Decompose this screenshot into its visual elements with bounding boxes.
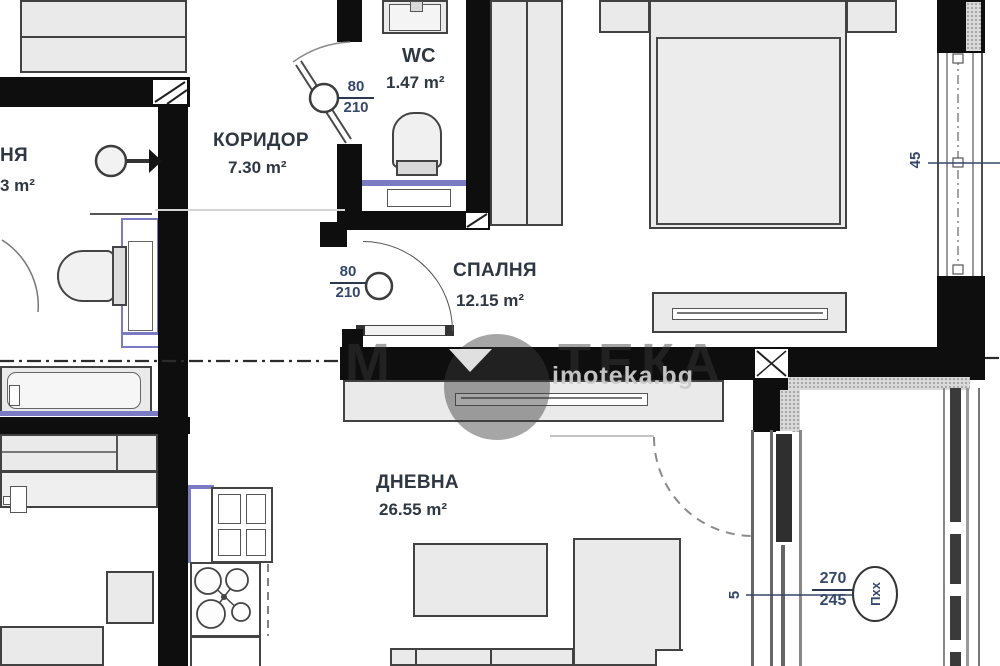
stove (190, 562, 261, 637)
bathtub-faucet (9, 385, 20, 406)
corridor-boundary-line (155, 209, 345, 211)
room-area-wc: 1.47 m² (386, 73, 445, 93)
neighbour-furniture-bottom (0, 626, 104, 666)
room-label-corridor: КОРИДОР (213, 130, 309, 152)
insulation-hatch (966, 2, 981, 51)
balcony-door-track (751, 430, 754, 666)
balcony-door-swing-arc (654, 437, 753, 536)
window-dimension-45: 45 (902, 145, 928, 175)
balcony-door-glazing (781, 545, 785, 666)
sofa-seat-divider (415, 650, 417, 664)
room-area-corridor: 7.30 m² (228, 158, 287, 178)
washing-machine (121, 333, 161, 348)
kitchen-counter-below (190, 636, 261, 666)
sink-bowl (246, 494, 266, 524)
room-area-left-partial: 3 m² (0, 176, 35, 196)
wardrobe-divider (22, 36, 185, 38)
wardrobe-bedroom-divider (526, 2, 528, 224)
wardrobe-top-left (20, 0, 187, 73)
wall-corridor-stub (320, 222, 347, 247)
wc-sink (382, 0, 448, 34)
balcony-sliding-panel (776, 431, 792, 545)
room-label-bedroom: СПАЛНЯ (453, 260, 537, 282)
balcony-door-width: 270 (812, 570, 854, 591)
balcony-window-line (978, 388, 980, 666)
toilet-bowl-left (57, 250, 115, 302)
vanity-edge (90, 213, 152, 215)
balcony-door-track (770, 430, 773, 666)
bedroom-window-frame (937, 53, 983, 276)
left-door-arc (2, 240, 38, 312)
watermark-domain: imoteka.bg (552, 362, 694, 391)
wall-junction-hatch (153, 80, 187, 104)
wall-bathroom-bottom (0, 417, 190, 434)
balcony-door-track (799, 430, 802, 666)
wall-wc-right (466, 0, 490, 212)
sofa-seat-divider (490, 650, 492, 664)
counter-divider (116, 436, 118, 470)
coffee-table (413, 543, 548, 617)
room-label-wc: WC (402, 45, 436, 68)
balcony-offset-5: 5 (723, 585, 745, 605)
neighbour-chair (106, 571, 154, 624)
bathtub-inner (7, 372, 141, 409)
window-frame-line (946, 53, 948, 276)
bath-window-accent (0, 411, 160, 416)
balcony-window-line (943, 388, 945, 666)
neighbour-small-tap (3, 496, 11, 505)
floor-plan: 80 210 80 210 270 245 45 5 Пхх НЯ 3 m² К… (0, 0, 1000, 666)
wall-wc-left-bottom (337, 144, 362, 212)
counter-line (2, 451, 116, 453)
nightstand-right (846, 0, 897, 33)
left-door-tag-circle (96, 146, 126, 176)
window-frame-line (972, 53, 974, 276)
balcony-window-glazing (950, 388, 961, 666)
balcony-window-line (966, 388, 969, 666)
wc-door-arc (293, 42, 350, 62)
room-label-left-partial: НЯ (0, 145, 28, 167)
balcony-tag-text: Пхх (859, 580, 891, 608)
sofa-chaise (573, 538, 681, 666)
room-area-living: 26.55 m² (379, 500, 447, 520)
bedroom-dresser (652, 292, 847, 333)
sofa-notch (655, 649, 683, 666)
room-label-living: ДНЕВНА (376, 472, 459, 494)
bedroom-door-arc (363, 241, 453, 331)
wc-sink-tap (410, 1, 423, 12)
kitchen-sink-unit (211, 487, 273, 563)
bed-mattress (656, 37, 841, 225)
sofa-seats (390, 648, 574, 666)
nightstand-left (599, 0, 650, 33)
wc-glass-accent (356, 180, 468, 186)
bedroom-door-height: 210 (330, 284, 366, 302)
neighbour-small-sink (10, 486, 27, 513)
wc-toilet-tank (396, 160, 438, 176)
wc-door-width: 80 (338, 79, 374, 99)
wardrobe-bedroom (490, 0, 563, 226)
sink-bowl (218, 494, 241, 524)
sink-bowl (218, 529, 241, 556)
wall-wc-left-top (337, 0, 362, 42)
neighbour-counter-1 (0, 434, 158, 472)
sideboard-slot (455, 393, 648, 406)
bedroom-door-width: 80 (330, 264, 366, 284)
insulation-hatch (780, 390, 800, 432)
wall-junction-hatch (755, 349, 788, 378)
dresser-slot (672, 308, 828, 320)
watermark-letter-m: М (345, 332, 390, 394)
room-area-bedroom: 12.15 m² (456, 291, 524, 311)
balcony-door-dimension: 270 245 (812, 570, 854, 609)
wc-shelf (387, 189, 451, 207)
wall-junction-hatch (466, 213, 488, 228)
shower-tray (128, 241, 153, 331)
kitchen-counter-accent-v (188, 487, 191, 563)
wall-right-mid (937, 276, 985, 347)
bathtub (0, 366, 152, 416)
wc-door-tag-circle (310, 84, 338, 112)
toilet-tank-left (112, 246, 127, 306)
wall-left-vertical (158, 107, 188, 666)
wc-door-height: 210 (338, 99, 374, 117)
balcony-door-height: 245 (812, 591, 854, 610)
wc-door-dimension: 80 210 (338, 79, 374, 116)
bedroom-door-dimension: 80 210 (330, 264, 366, 301)
sink-bowl (246, 529, 266, 556)
